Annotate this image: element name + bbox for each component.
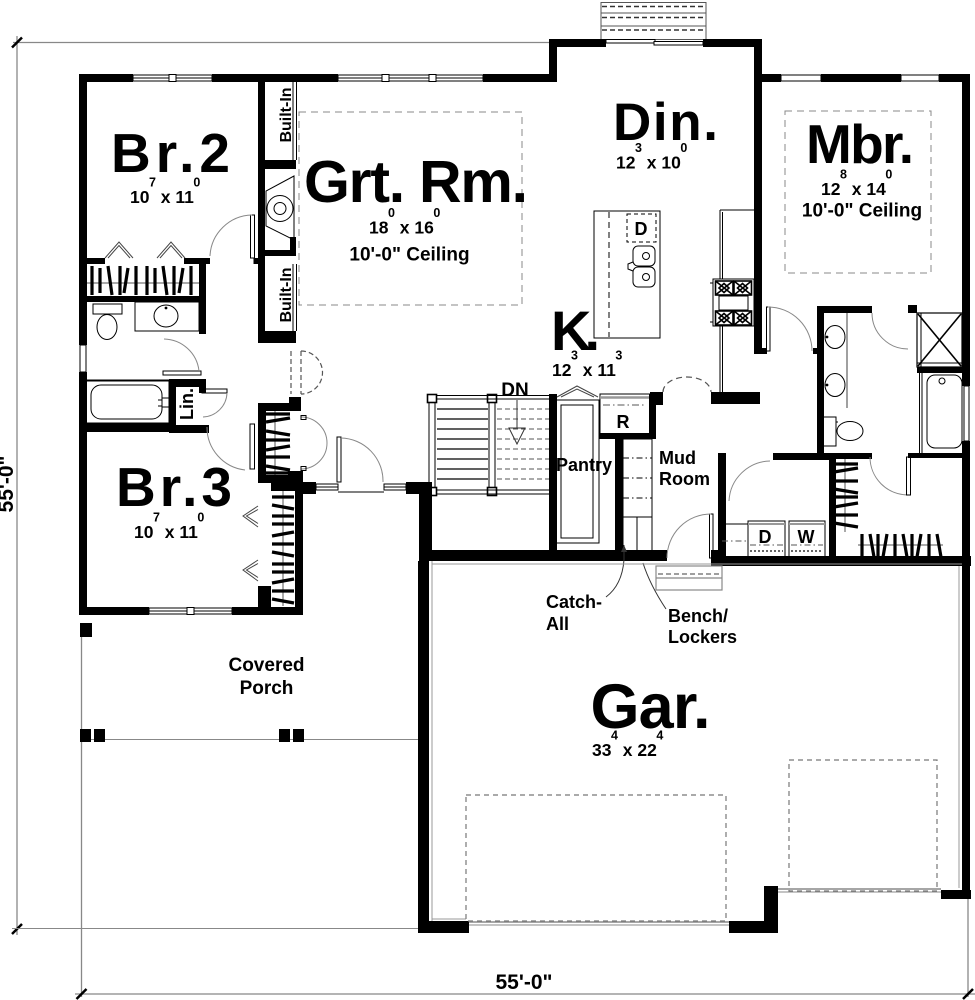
svg-text:R: R — [617, 412, 630, 432]
svg-text:55'-0": 55'-0" — [496, 971, 553, 994]
svg-text:D: D — [635, 219, 648, 239]
svg-text:55'-0": 55'-0" — [0, 456, 18, 513]
svg-text:DN: DN — [501, 380, 528, 401]
svg-text:Room: Room — [659, 469, 710, 489]
svg-text:Mbr.: Mbr. — [806, 113, 914, 175]
svg-text:Covered: Covered — [228, 655, 304, 676]
svg-text:All: All — [546, 614, 569, 634]
svg-text:Mud: Mud — [659, 448, 696, 468]
svg-text:Bench/: Bench/ — [668, 606, 728, 626]
svg-text:Porch: Porch — [240, 678, 294, 699]
svg-text:W: W — [798, 527, 815, 547]
svg-text:Lin.: Lin. — [177, 388, 197, 420]
svg-text:Br.3: Br.3 — [116, 456, 232, 518]
svg-text:10'-0" Ceiling: 10'-0" Ceiling — [349, 245, 469, 266]
svg-text:Grt. Rm.: Grt. Rm. — [304, 149, 528, 215]
svg-text:Catch-: Catch- — [546, 592, 602, 612]
svg-text:10'-0" Ceiling: 10'-0" Ceiling — [802, 201, 922, 222]
svg-text:Br.2: Br.2 — [111, 122, 230, 184]
svg-text:Pantry: Pantry — [556, 455, 612, 475]
svg-text:D: D — [759, 527, 772, 547]
svg-text:Built-In: Built-In — [278, 267, 295, 322]
svg-text:Lockers: Lockers — [668, 627, 737, 647]
svg-text:Built-In: Built-In — [278, 87, 295, 142]
svg-text:Gar.: Gar. — [591, 672, 711, 742]
